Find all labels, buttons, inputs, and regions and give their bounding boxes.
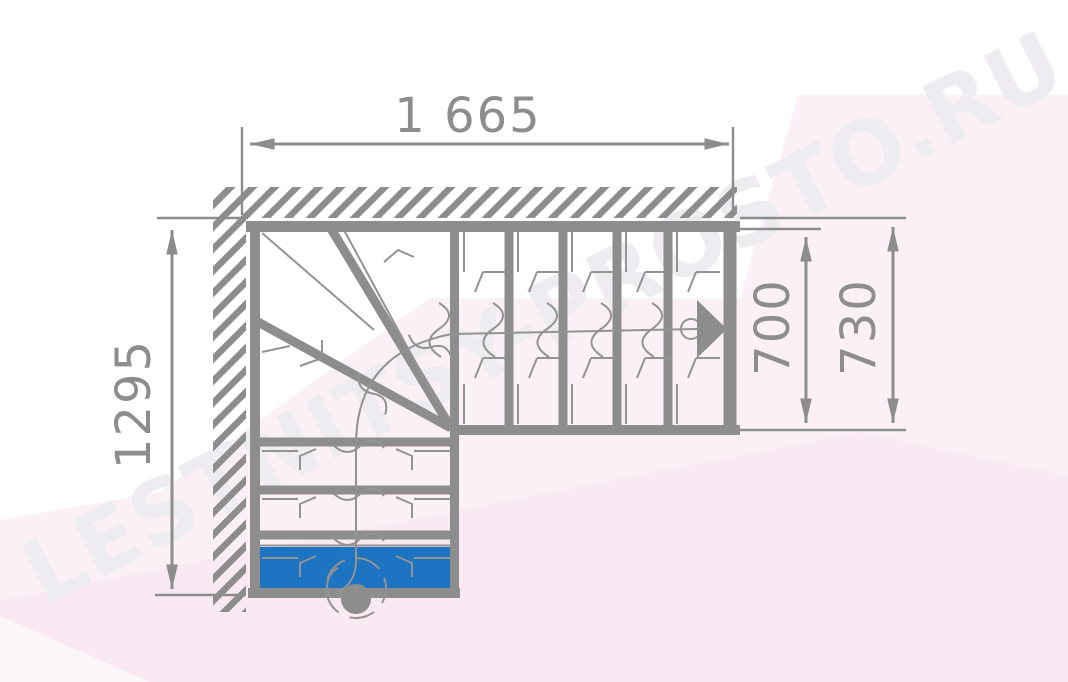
dim-flight-overall-label: 730 [831,278,887,376]
left-wall-hatch [213,187,246,612]
newel-post-icon [341,584,371,614]
upper-flight-risers [509,226,668,425]
staircase-plan-drawing: 1 665 1295 700 730 [0,0,1068,682]
tread-outline-marks [262,232,720,577]
dim-total-depth-label: 1295 [106,339,162,469]
dim-flight-width-label: 700 [745,278,801,376]
top-wall-hatch [214,187,737,218]
winder-steps [258,227,451,428]
dim-total-width-label: 1 665 [394,88,541,144]
direction-arrow-icon [697,300,727,358]
